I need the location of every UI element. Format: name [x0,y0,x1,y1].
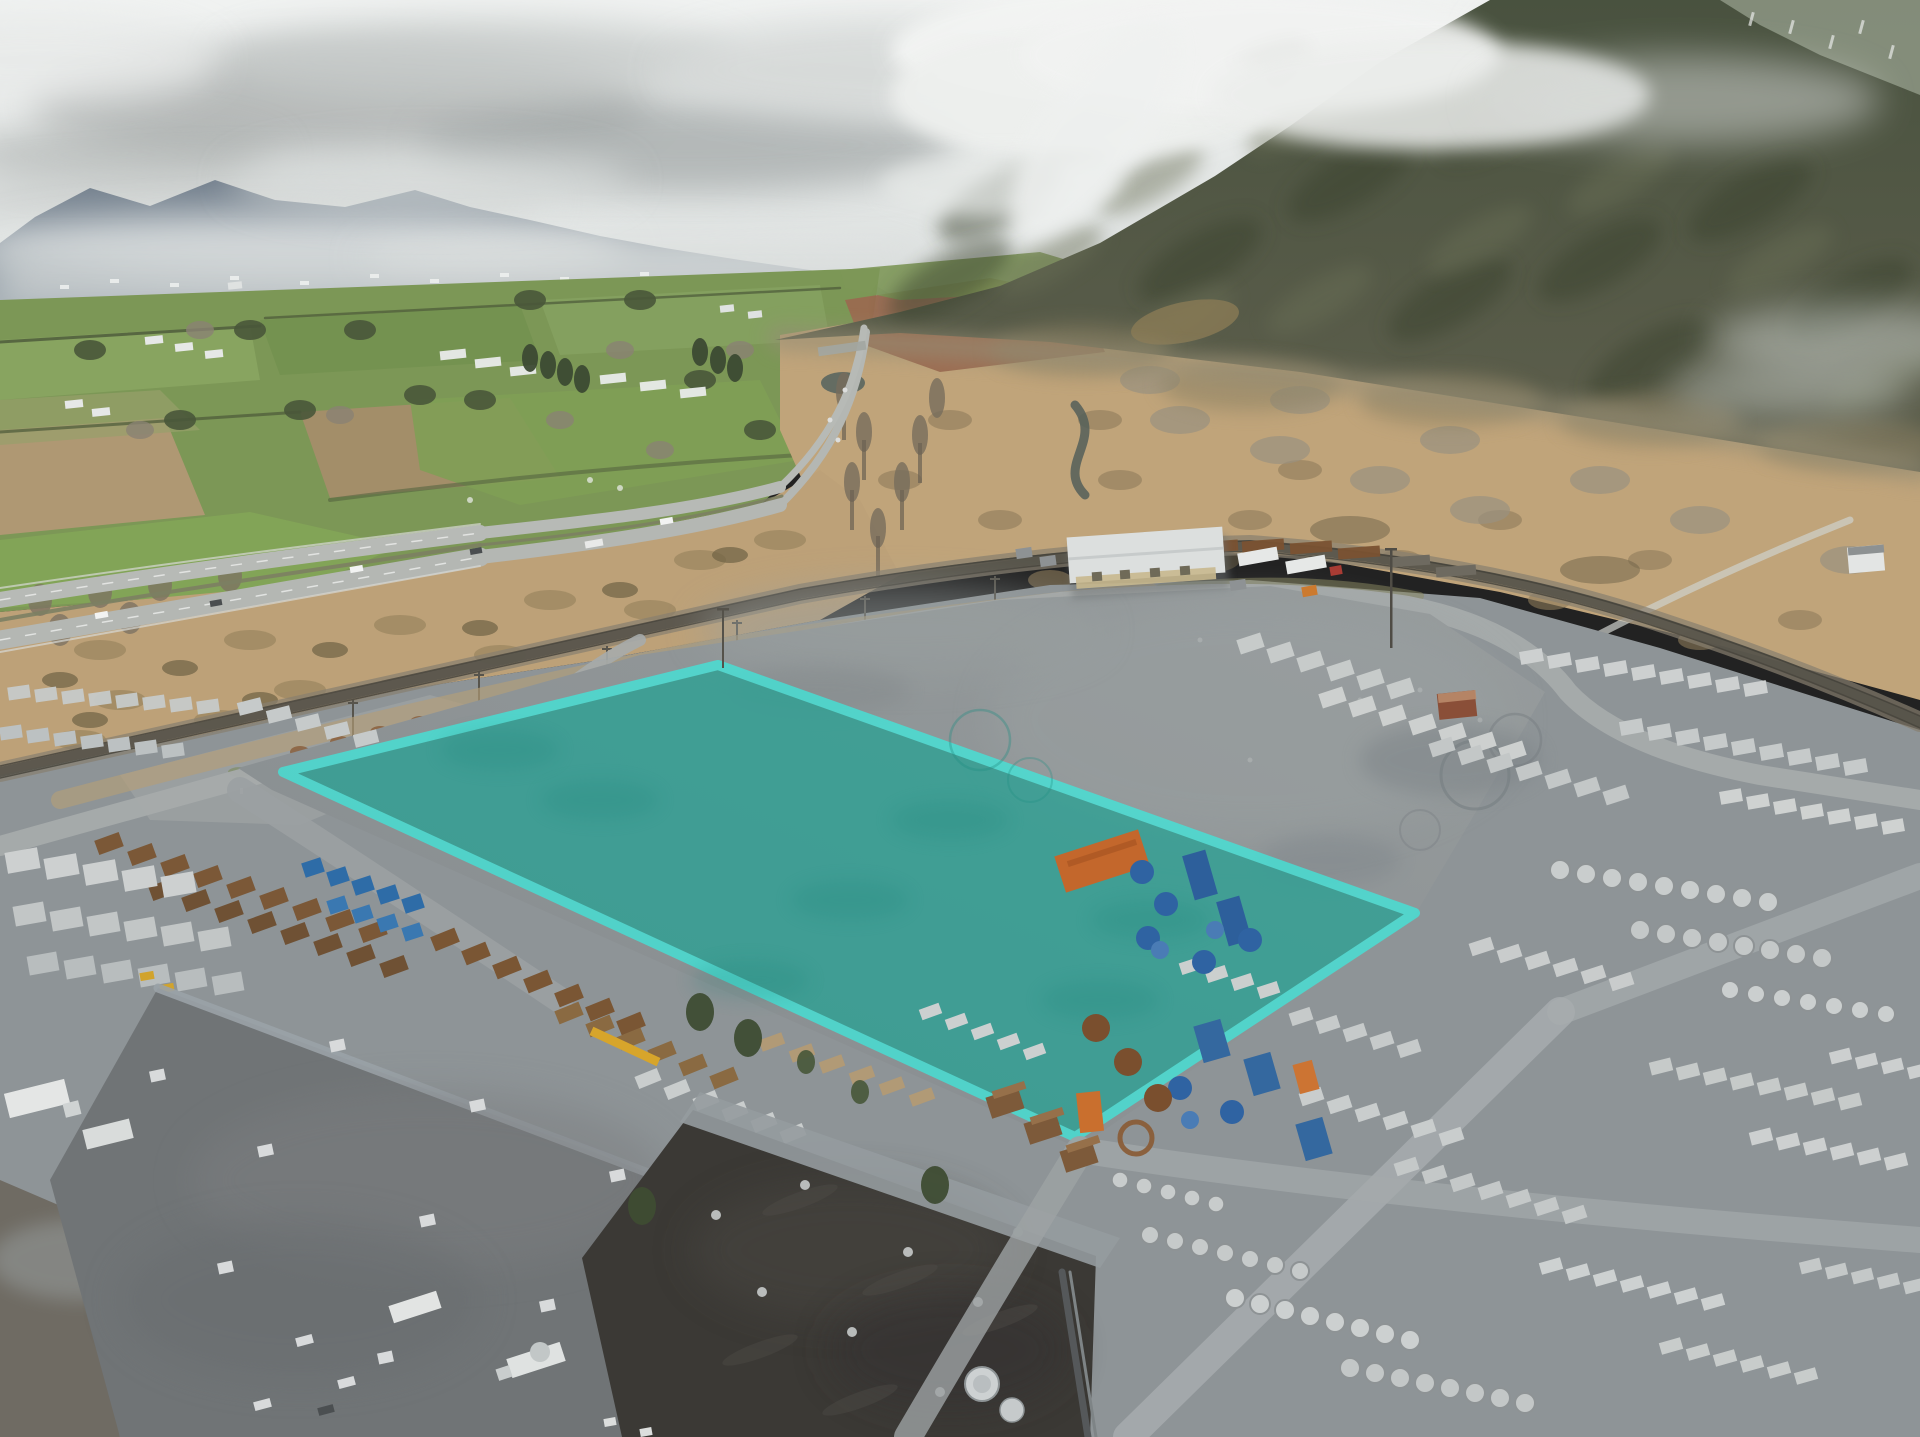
aerial-photo-canvas [0,0,1920,1437]
aerial-photo-industrial-land-listing [0,0,1920,1437]
